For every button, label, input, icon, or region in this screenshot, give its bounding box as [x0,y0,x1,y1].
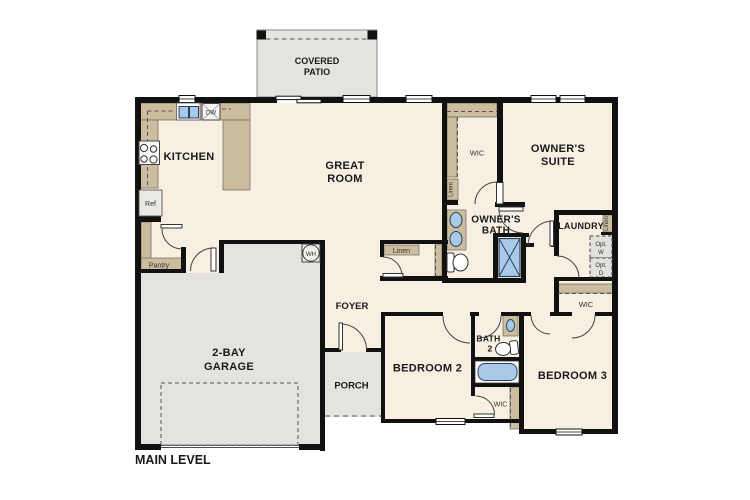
svg-text:OWNER'S: OWNER'S [531,143,585,155]
svg-text:WIC: WIC [579,300,594,309]
svg-text:GREAT: GREAT [325,160,364,172]
svg-text:KITCHEN: KITCHEN [164,151,215,163]
svg-text:BATH: BATH [476,334,500,344]
svg-text:Pantry: Pantry [149,263,170,270]
svg-text:SUITE: SUITE [541,156,575,168]
svg-text:PATIO: PATIO [304,67,330,77]
svg-text:OWNER'S: OWNER'S [471,215,521,226]
svg-text:2-BAY: 2-BAY [212,347,246,359]
svg-text:Opt.: Opt. [595,242,607,248]
svg-text:2: 2 [487,344,492,354]
svg-text:WIC: WIC [470,149,485,158]
svg-text:D: D [599,271,604,277]
svg-text:WH: WH [306,252,316,258]
svg-text:W: W [598,250,604,256]
svg-text:DW: DW [206,111,216,117]
svg-text:COVERED: COVERED [295,56,340,66]
svg-text:Linen: Linen [393,248,410,255]
svg-text:Ref: Ref [145,201,156,208]
svg-text:FOYER: FOYER [336,301,369,312]
svg-text:PORCH: PORCH [334,381,368,392]
svg-text:ROOM: ROOM [327,173,362,185]
svg-text:LAUNDRY: LAUNDRY [558,221,604,231]
svg-text:WIC: WIC [494,402,508,409]
svg-text:Linen: Linen [604,216,610,231]
svg-text:GARAGE: GARAGE [204,361,254,373]
svg-text:Opt.: Opt. [595,263,607,269]
svg-text:Linen: Linen [449,182,455,197]
svg-text:BEDROOM 3: BEDROOM 3 [538,370,607,382]
svg-text:MAIN LEVEL: MAIN LEVEL [135,453,211,467]
svg-text:BATH: BATH [482,226,510,237]
svg-text:BEDROOM 2: BEDROOM 2 [393,363,462,375]
